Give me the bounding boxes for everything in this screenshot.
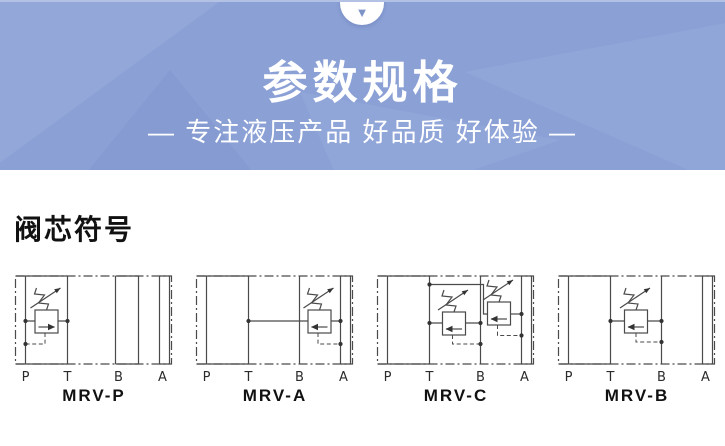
port-label-t: T [244, 370, 253, 385]
port-label-b: B [657, 370, 666, 385]
port-label-t: T [425, 370, 434, 385]
port-label-b: B [295, 370, 304, 385]
banner-subtitle: — 专注液压产品 好品质 好体验 — [0, 112, 725, 149]
mrv-p-schematic: P T B A [14, 274, 174, 386]
banner-title: 参数规格 [0, 46, 725, 111]
port-label-p: P [203, 370, 211, 385]
valve-diagram-row: P T B A MRV-P [0, 274, 725, 406]
port-label-a: A [158, 370, 167, 385]
port-label-p: P [384, 370, 392, 385]
port-label-t: T [63, 370, 72, 385]
port-label-p: P [565, 370, 573, 385]
port-label-p: P [22, 370, 30, 385]
diagram-name-mrv-a: MRV-A [195, 386, 355, 406]
diagram-mrv-b: P T B A MRV-B [557, 274, 717, 406]
port-label-a: A [701, 370, 710, 385]
diagram-mrv-a: P T B A MRV-A [195, 274, 355, 406]
port-label-t: T [606, 370, 615, 385]
mrv-c-schematic: P T B A [376, 274, 536, 386]
diagram-name-mrv-p: MRV-P [14, 386, 174, 406]
diagram-name-mrv-b: MRV-B [557, 386, 717, 406]
scroll-down-badge: ▼ [340, 0, 384, 25]
diagram-mrv-c: P T B A MRV-C [376, 274, 536, 406]
down-arrow-icon: ▼ [356, 6, 369, 25]
specs-banner: ▼ 参数规格 — 专注液压产品 好品质 好体验 — [0, 0, 725, 170]
port-label-b: B [114, 370, 123, 385]
mrv-a-schematic: P T B A [195, 274, 355, 386]
mrv-b-schematic: P T B A [557, 274, 717, 386]
port-label-a: A [520, 370, 529, 385]
port-label-b: B [476, 370, 485, 385]
valve-symbol-heading: 阀芯符号 [14, 208, 725, 248]
diagram-name-mrv-c: MRV-C [376, 386, 536, 406]
diagram-mrv-p: P T B A MRV-P [14, 274, 174, 406]
port-label-a: A [339, 370, 348, 385]
